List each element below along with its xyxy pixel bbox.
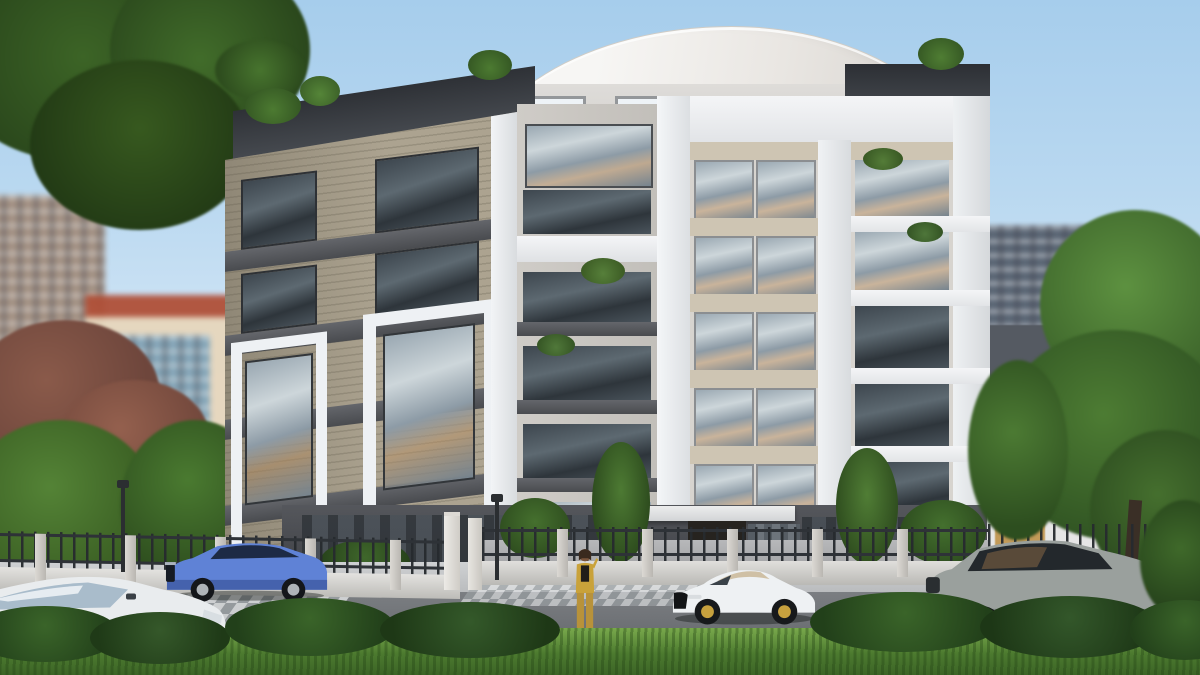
gate-pillar: [444, 516, 460, 590]
balcony-slab-white: [851, 290, 990, 306]
fascia-top: [657, 96, 990, 142]
window: [694, 160, 754, 222]
corner-white-strip: [491, 112, 517, 548]
balcony-slab-white: [851, 368, 990, 384]
spandrel: [690, 446, 818, 464]
window: [694, 236, 754, 298]
fence-pillar: [390, 540, 401, 590]
right-facade: [657, 96, 990, 534]
balcony-glass: [523, 190, 651, 234]
window: [756, 312, 816, 374]
left-facade: [225, 112, 517, 548]
hedge: [225, 598, 395, 656]
window: [694, 388, 754, 450]
balcony-slab: [517, 322, 657, 336]
window: [694, 312, 754, 374]
window: [756, 160, 816, 222]
left-window: [375, 147, 479, 234]
gate-pillar: [468, 518, 482, 590]
terrace-plant: [245, 88, 301, 124]
fence-pillar: [897, 529, 908, 577]
lamp-head: [117, 480, 129, 488]
balcony-glass: [855, 306, 949, 368]
balcony-plant: [581, 258, 625, 284]
hedge: [810, 592, 1000, 652]
scene-apartment-render: 27: [0, 0, 1200, 675]
white-strip: [657, 96, 690, 534]
terrace-plant: [468, 50, 512, 80]
balcony-plant: [863, 148, 903, 170]
window: [756, 236, 816, 298]
spandrel: [690, 294, 818, 312]
left-window: [241, 265, 317, 334]
balcony-plant: [907, 222, 943, 242]
car-white-sports: [670, 550, 818, 628]
terrace-plant: [918, 38, 964, 70]
spandrel: [690, 218, 818, 236]
lamp-head: [491, 494, 503, 502]
balcony-glass: [855, 384, 949, 446]
fence-pillar: [642, 529, 653, 577]
spandrel: [690, 142, 818, 160]
tree-overhang-building: [968, 360, 1068, 540]
corner-window: [525, 124, 653, 188]
balcony-slab: [517, 400, 657, 414]
terrace-plant: [300, 76, 340, 106]
balcony-glass: [855, 232, 949, 290]
hedge: [380, 602, 560, 658]
left-window: [241, 171, 317, 250]
spandrel: [690, 370, 818, 388]
tree-canopy-top-left: [30, 60, 250, 230]
corner-white-band: [517, 236, 657, 262]
balcony-glass: [855, 160, 949, 216]
hedge: [90, 612, 230, 664]
lamp-post: [495, 502, 499, 580]
car-white-sports-art: [670, 550, 818, 628]
balcony-glass: [523, 346, 651, 400]
balcony-plant: [537, 334, 575, 356]
window: [756, 388, 816, 450]
